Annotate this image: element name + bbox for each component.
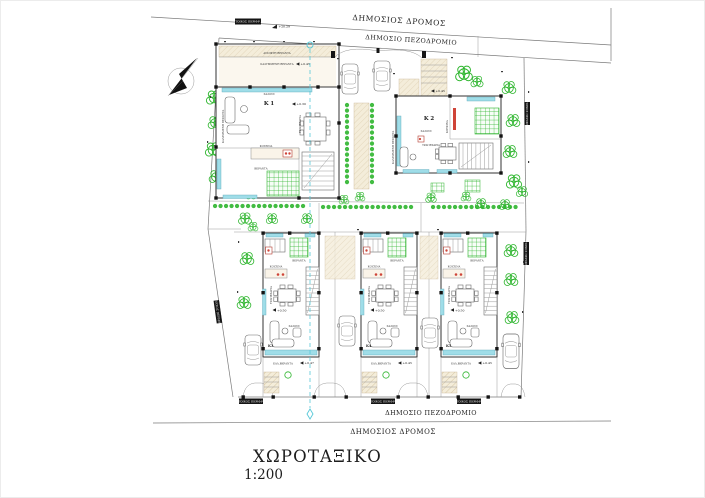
site-plan-page: ΒΕΡΑΝΤΑ ΚΟΥΖΙΝΑ ΤΡΑΠ xyxy=(0,0,705,498)
k1-kitchen-label: ΚΟΥΖΙΝΑ xyxy=(260,144,273,148)
svg-text:ΤΟΙΧΟΣ ΠΕΡΙΦΡ.: ΤΟΙΧΟΣ ΠΕΡΙΦΡ. xyxy=(238,399,263,403)
svg-text:ΤΟΙΧΟΣ ΠΕΡΙΦΡ.: ΤΟΙΧΟΣ ΠΕΡΙΦΡ. xyxy=(524,241,528,266)
k1-veranda-level: +0.45 xyxy=(301,62,311,66)
k1-id: K 1 xyxy=(264,101,275,107)
drawing-scale: 1:200 xyxy=(244,467,283,483)
k1-covered-veranda-side-label: ΚΑΛΥΜΜΕΝΗ ΒΕΡΑΝΤΑ xyxy=(221,110,225,143)
bottom-street: ΤΟΙΧΟΣ ΠΕΡΙΦΡ. ΤΟΙΧΟΣ ΠΕΡΙΦΡ. ΤΟΙΧΟΣ ΠΕΡ… xyxy=(153,383,611,436)
k2-dining-label: ΤΡΑΠΕΖΑΡΙΑ xyxy=(422,143,440,147)
k2-kitchen-label: ΚΟΥΖΙΝΑ xyxy=(445,120,449,133)
site-plan-drawing: ΒΕΡΑΝΤΑ ΚΟΥΖΙΝΑ ΤΡΑΠ xyxy=(1,1,705,498)
title-block: ΧΩΡΟΤΑΞΙΚΟ 1:200 xyxy=(244,447,382,483)
k3-veranda-level: +0.47 xyxy=(305,361,315,365)
parked-car xyxy=(421,318,439,348)
k1-floor-level: +0.30 xyxy=(297,102,307,106)
k2-id: K 2 xyxy=(424,116,435,122)
drawing-title: ΧΩΡΟΤΑΞΙΚΟ xyxy=(253,447,382,466)
k3-id: K3 xyxy=(268,344,274,348)
k1-open-veranda-label: ΑΝΟΙΚΤΗ ΒΕΡΑΝΤΑ xyxy=(262,51,290,55)
perimeter-wall-tag: ΤΟΙΧΟΣ ΠΕΡΙΦΡ. xyxy=(213,299,222,325)
k2-living-label: ΣΑΛΟΝΙ xyxy=(420,129,431,133)
k1-living-label: ΣΑΛΟΝΙ xyxy=(263,92,274,96)
rowhouses: K3 K4 K5 +0.47 +0.45 +0.45 xyxy=(261,231,498,397)
k4-veranda-level: +0.45 xyxy=(403,361,413,365)
bottom-sidewalk-label: ΔΗΜΟΣΙΟ ΠΕΖΟΔΡΟΜΙΟ xyxy=(385,409,477,417)
k4-id: K4 xyxy=(366,344,372,348)
svg-text:ΤΟΙΧΟΣ ΠΕΡΙΦΡ.: ΤΟΙΧΟΣ ΠΕΡΙΦΡ. xyxy=(456,399,481,403)
perimeter-wall-tag: ΤΟΙΧΟΣ ΠΕΡΙΦΡ. xyxy=(525,101,531,126)
k2-entry-level: +0.45 xyxy=(436,89,446,93)
parked-car xyxy=(502,334,520,369)
k1-dining-label: ΤΡΑΠΕΖΑΡΙΑ xyxy=(298,115,302,133)
parked-car xyxy=(341,64,359,94)
building-k4 xyxy=(359,231,418,397)
top-road-label: ΔΗΜΟΣΙΟΣ ΔΡΟΜΟΣ xyxy=(352,13,446,28)
parked-car xyxy=(373,61,391,91)
svg-text:ΤΟΙΧΟΣ ΠΕΡΙΦΡ.: ΤΟΙΧΟΣ ΠΕΡΙΦΡ. xyxy=(525,101,529,126)
k1-veranda-label: ΒΕΡΑΝΤΑ xyxy=(254,167,267,171)
k5-id: K5 xyxy=(446,344,452,348)
perimeter-wall-tag-label: ΤΟΙΧΟΣ ΠΕΡΙΦΡ. xyxy=(235,20,260,24)
building-k3 xyxy=(261,231,320,397)
building-k5 xyxy=(439,231,498,397)
building-k2: +0.45 K 2 ΣΑΛΟΝΙ ΚΟΥΖΙΝΑ ΚΑΛΥΜΜΕΝΗ ΒΕΡΑΝ… xyxy=(391,59,503,175)
bottom-road-label: ΔΗΜΟΣΙΟΣ ΔΡΟΜΟΣ xyxy=(350,428,436,436)
k5-veranda-level: +0.45 xyxy=(483,361,493,365)
street-level-value: +20.29 xyxy=(279,25,290,29)
perimeter-wall-tag: ΤΟΙΧΟΣ ΠΕΡΙΦΡ. xyxy=(524,241,530,266)
building-k1: ΑΝΟΙΚΤΗ ΒΕΡΑΝΤΑ ΚΑΛΥΜΜΕΝΗ ΒΕΡΑΝΤΑ +0.45 … xyxy=(214,42,340,199)
svg-text:ΤΟΙΧΟΣ ΠΕΡΙΦΡ.: ΤΟΙΧΟΣ ΠΕΡΙΦΡ. xyxy=(370,399,395,403)
north-arrow-icon xyxy=(168,58,198,96)
parked-car xyxy=(338,316,356,346)
top-sidewalk-label: ΔΗΜΟΣΙΟ ΠΕΖΟΔΡΟΜΙΟ xyxy=(365,33,457,47)
street-level-marker: +20.29 xyxy=(272,24,290,28)
k1-covered-veranda-label: ΚΑΛΥΜΜΕΝΗ ΒΕΡΑΝΤΑ xyxy=(260,62,293,66)
parked-car xyxy=(244,335,262,365)
